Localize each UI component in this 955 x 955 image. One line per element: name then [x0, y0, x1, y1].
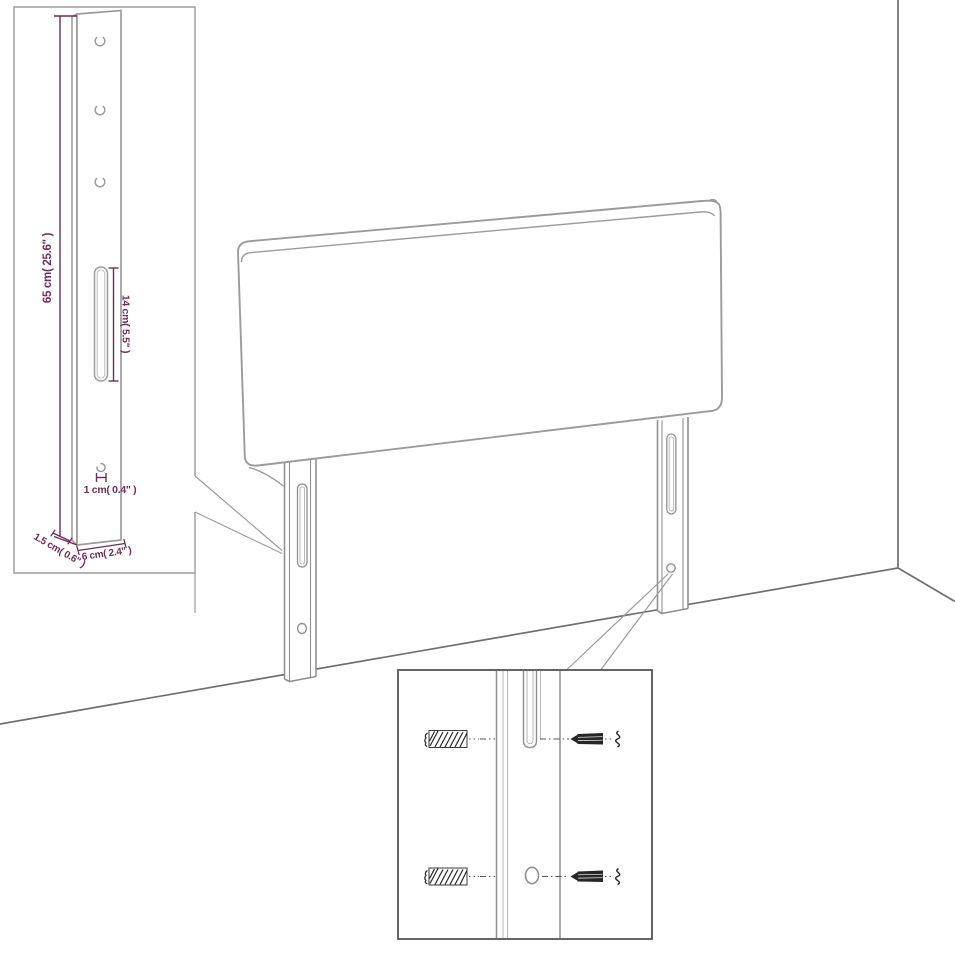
diagram-canvas: 65 cm( 25.6" ) 14 cm( 5.5" ) 1 cm( 0.4" … — [0, 0, 955, 955]
callout-lines-left — [195, 476, 282, 554]
left-leg-slot — [298, 484, 308, 567]
floor-edge-right — [898, 568, 955, 602]
hardware-detail-inset — [398, 670, 652, 939]
dim-hole-size-label: 1 cm( 0.4" ) — [84, 484, 137, 496]
callout-lines-right — [567, 574, 673, 670]
leg-detail-inset: 65 cm( 25.6" ) 14 cm( 5.5" ) 1 cm( 0.4" … — [14, 7, 195, 613]
wall-plug-top — [425, 731, 467, 748]
panel-outline — [238, 201, 722, 466]
hardware-detail-box — [398, 670, 652, 939]
wall-plug-bottom — [425, 868, 467, 885]
left-leg-hole — [298, 624, 307, 634]
headboard-left-leg — [285, 459, 317, 682]
headboard-panel — [238, 200, 722, 487]
panel-bottom-left-thickness — [249, 468, 284, 487]
post-slot — [95, 267, 108, 381]
right-leg-slot — [667, 434, 676, 514]
right-leg-hole — [667, 564, 675, 572]
headboard-right-leg — [658, 417, 689, 614]
dim-slot-length-label: 14 cm( 5.5" ) — [120, 295, 132, 353]
mounting-hole-detail — [526, 867, 539, 883]
product-dimension-diagram: 65 cm( 25.6" ) 14 cm( 5.5" ) 1 cm( 0.4" … — [0, 0, 955, 955]
dim-post-height-label: 65 cm( 25.6" ) — [42, 232, 54, 303]
